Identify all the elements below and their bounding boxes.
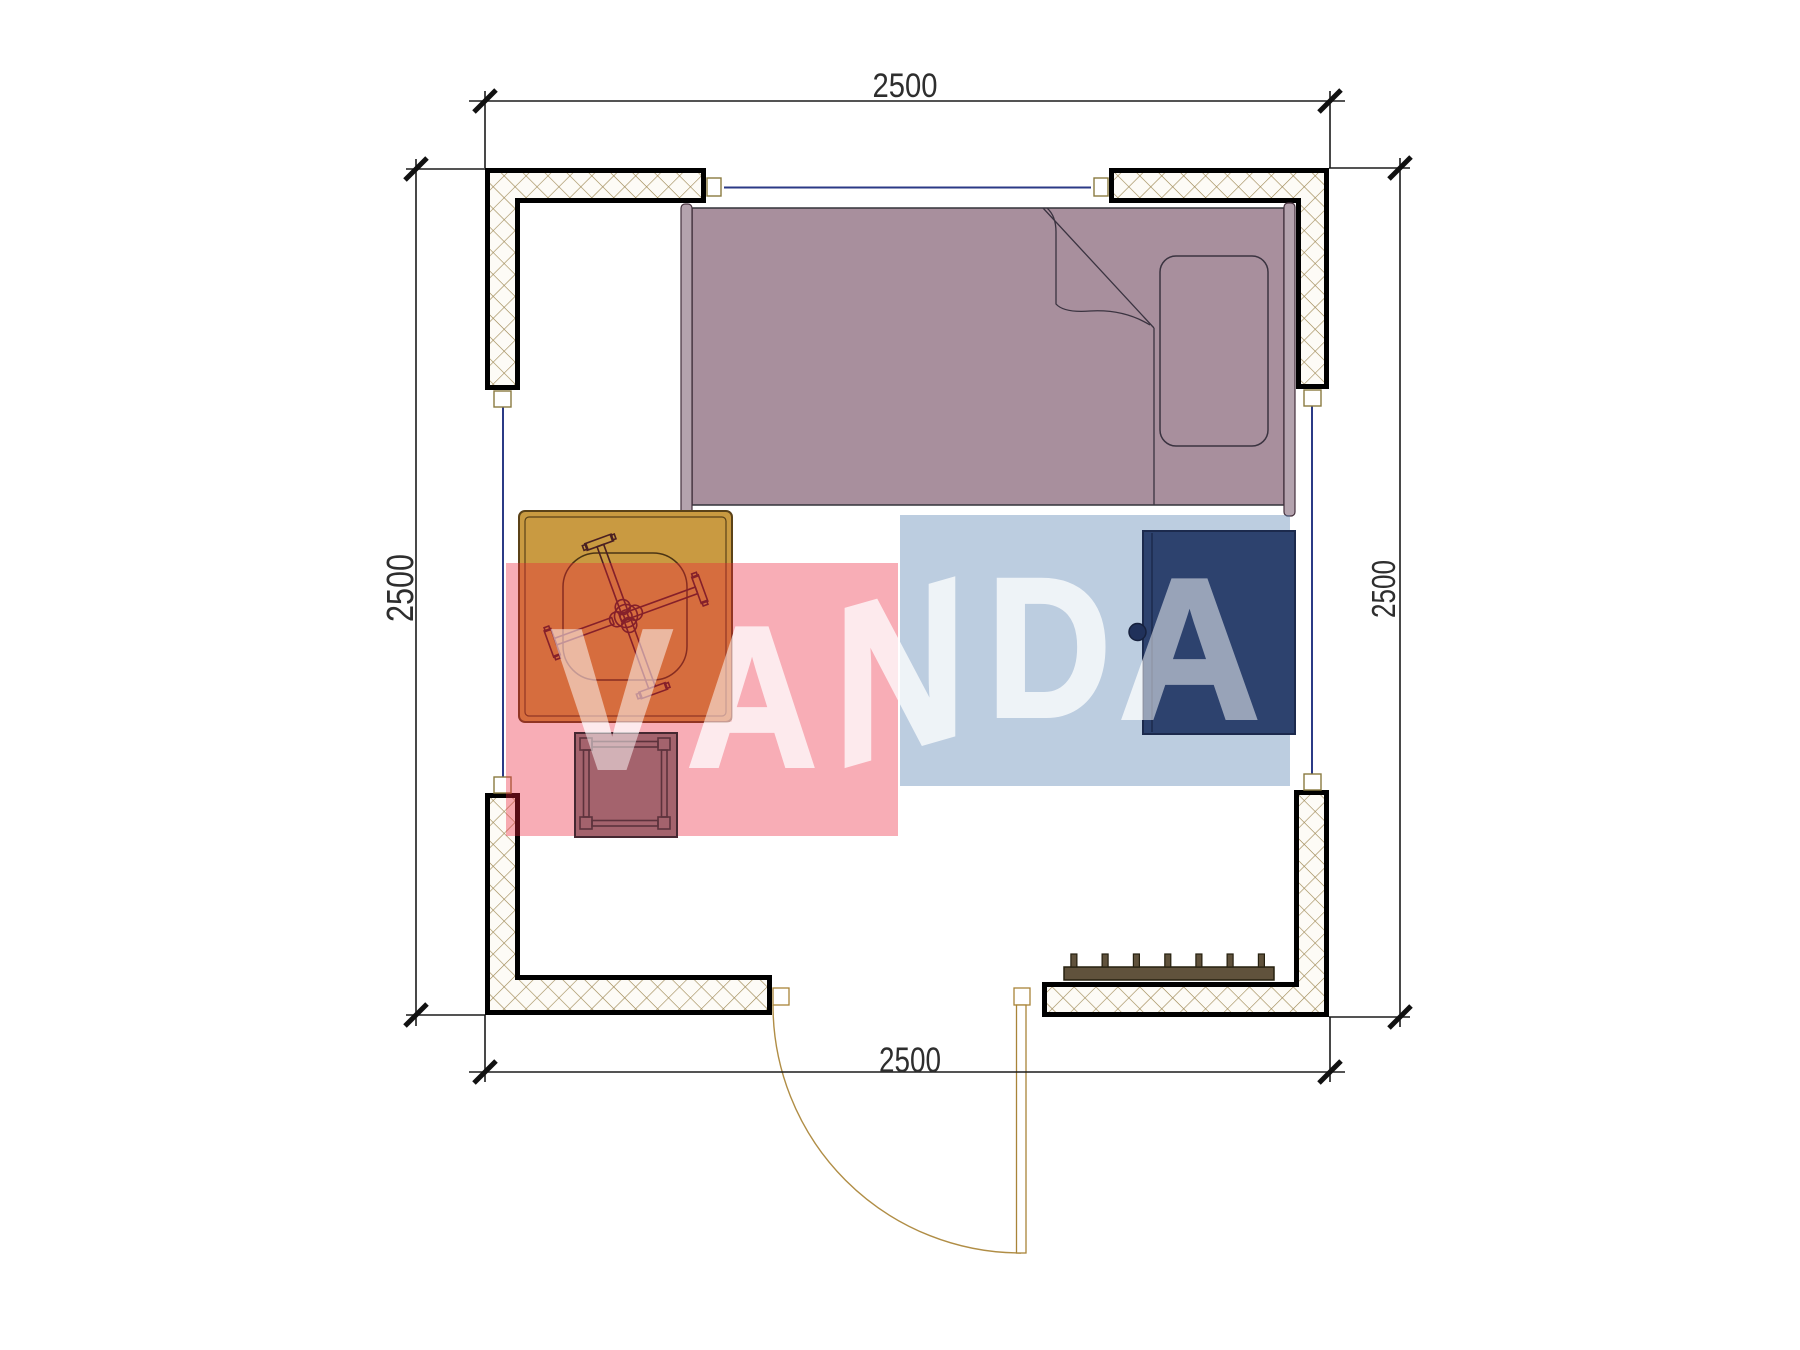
svg-text:2500: 2500 xyxy=(873,67,938,105)
svg-text:2500: 2500 xyxy=(380,554,422,622)
svg-text:2500: 2500 xyxy=(879,1041,941,1080)
svg-text:V: V xyxy=(552,589,672,811)
svg-text:A: A xyxy=(1119,538,1260,761)
svg-text:N: N xyxy=(834,526,966,818)
svg-text:A: A xyxy=(687,586,817,809)
svg-text:2500: 2500 xyxy=(1365,560,1402,618)
svg-text:D: D xyxy=(987,537,1111,758)
